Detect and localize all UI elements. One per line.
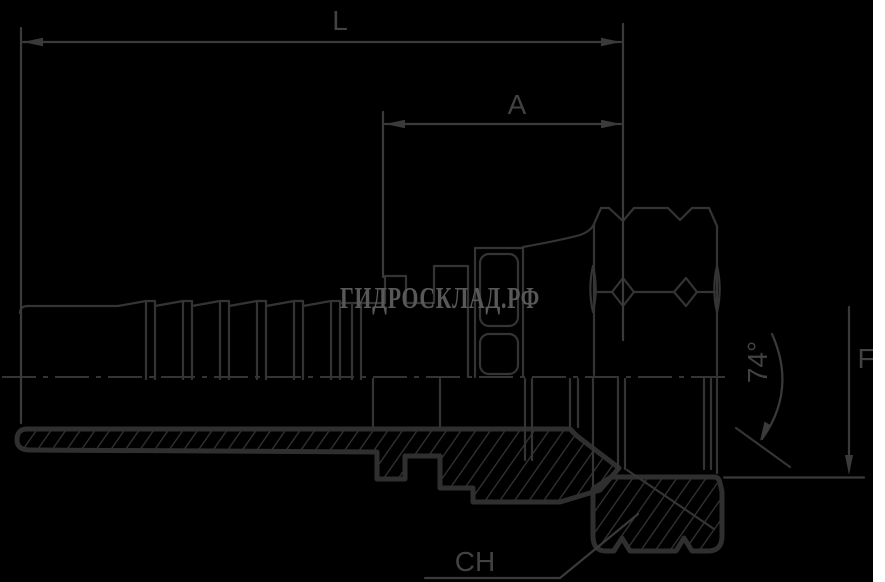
dim-label-l: L (332, 5, 348, 36)
section-nipple (17, 429, 619, 502)
dimension-l: L (21, 5, 623, 423)
hex-corner-diamond-right (674, 278, 697, 306)
dim-label-a: A (508, 89, 527, 120)
watermark-text: ГИДРОСКЛАД.РФ (340, 280, 540, 315)
arrowhead-arc-icon (760, 422, 771, 442)
arrowhead-right-icon (601, 120, 621, 128)
arrowhead-right-icon (601, 38, 621, 46)
collar-chamfer-lower (480, 334, 518, 374)
arrowhead-left-icon (23, 38, 43, 46)
arrowhead-down-icon (845, 455, 853, 475)
fitting-drawing: L A F 74° CH ГИДРОСКЛАД.РФ (0, 0, 885, 582)
right-edge-strip (873, 0, 885, 582)
section-nut (593, 470, 722, 551)
angle-annotation-74: 74° (736, 334, 790, 467)
ch-label: CH (455, 546, 495, 577)
arrowhead-left-icon (385, 120, 405, 128)
angle-label: 74° (742, 341, 773, 383)
dimension-f: F (724, 307, 875, 478)
hex-nut-outline (590, 208, 719, 375)
nut-shoulder-curve (523, 224, 594, 247)
technical-drawing-canvas: L A F 74° CH ГИДРОСКЛАД.РФ (0, 0, 885, 582)
dim-label-f: F (857, 343, 874, 374)
